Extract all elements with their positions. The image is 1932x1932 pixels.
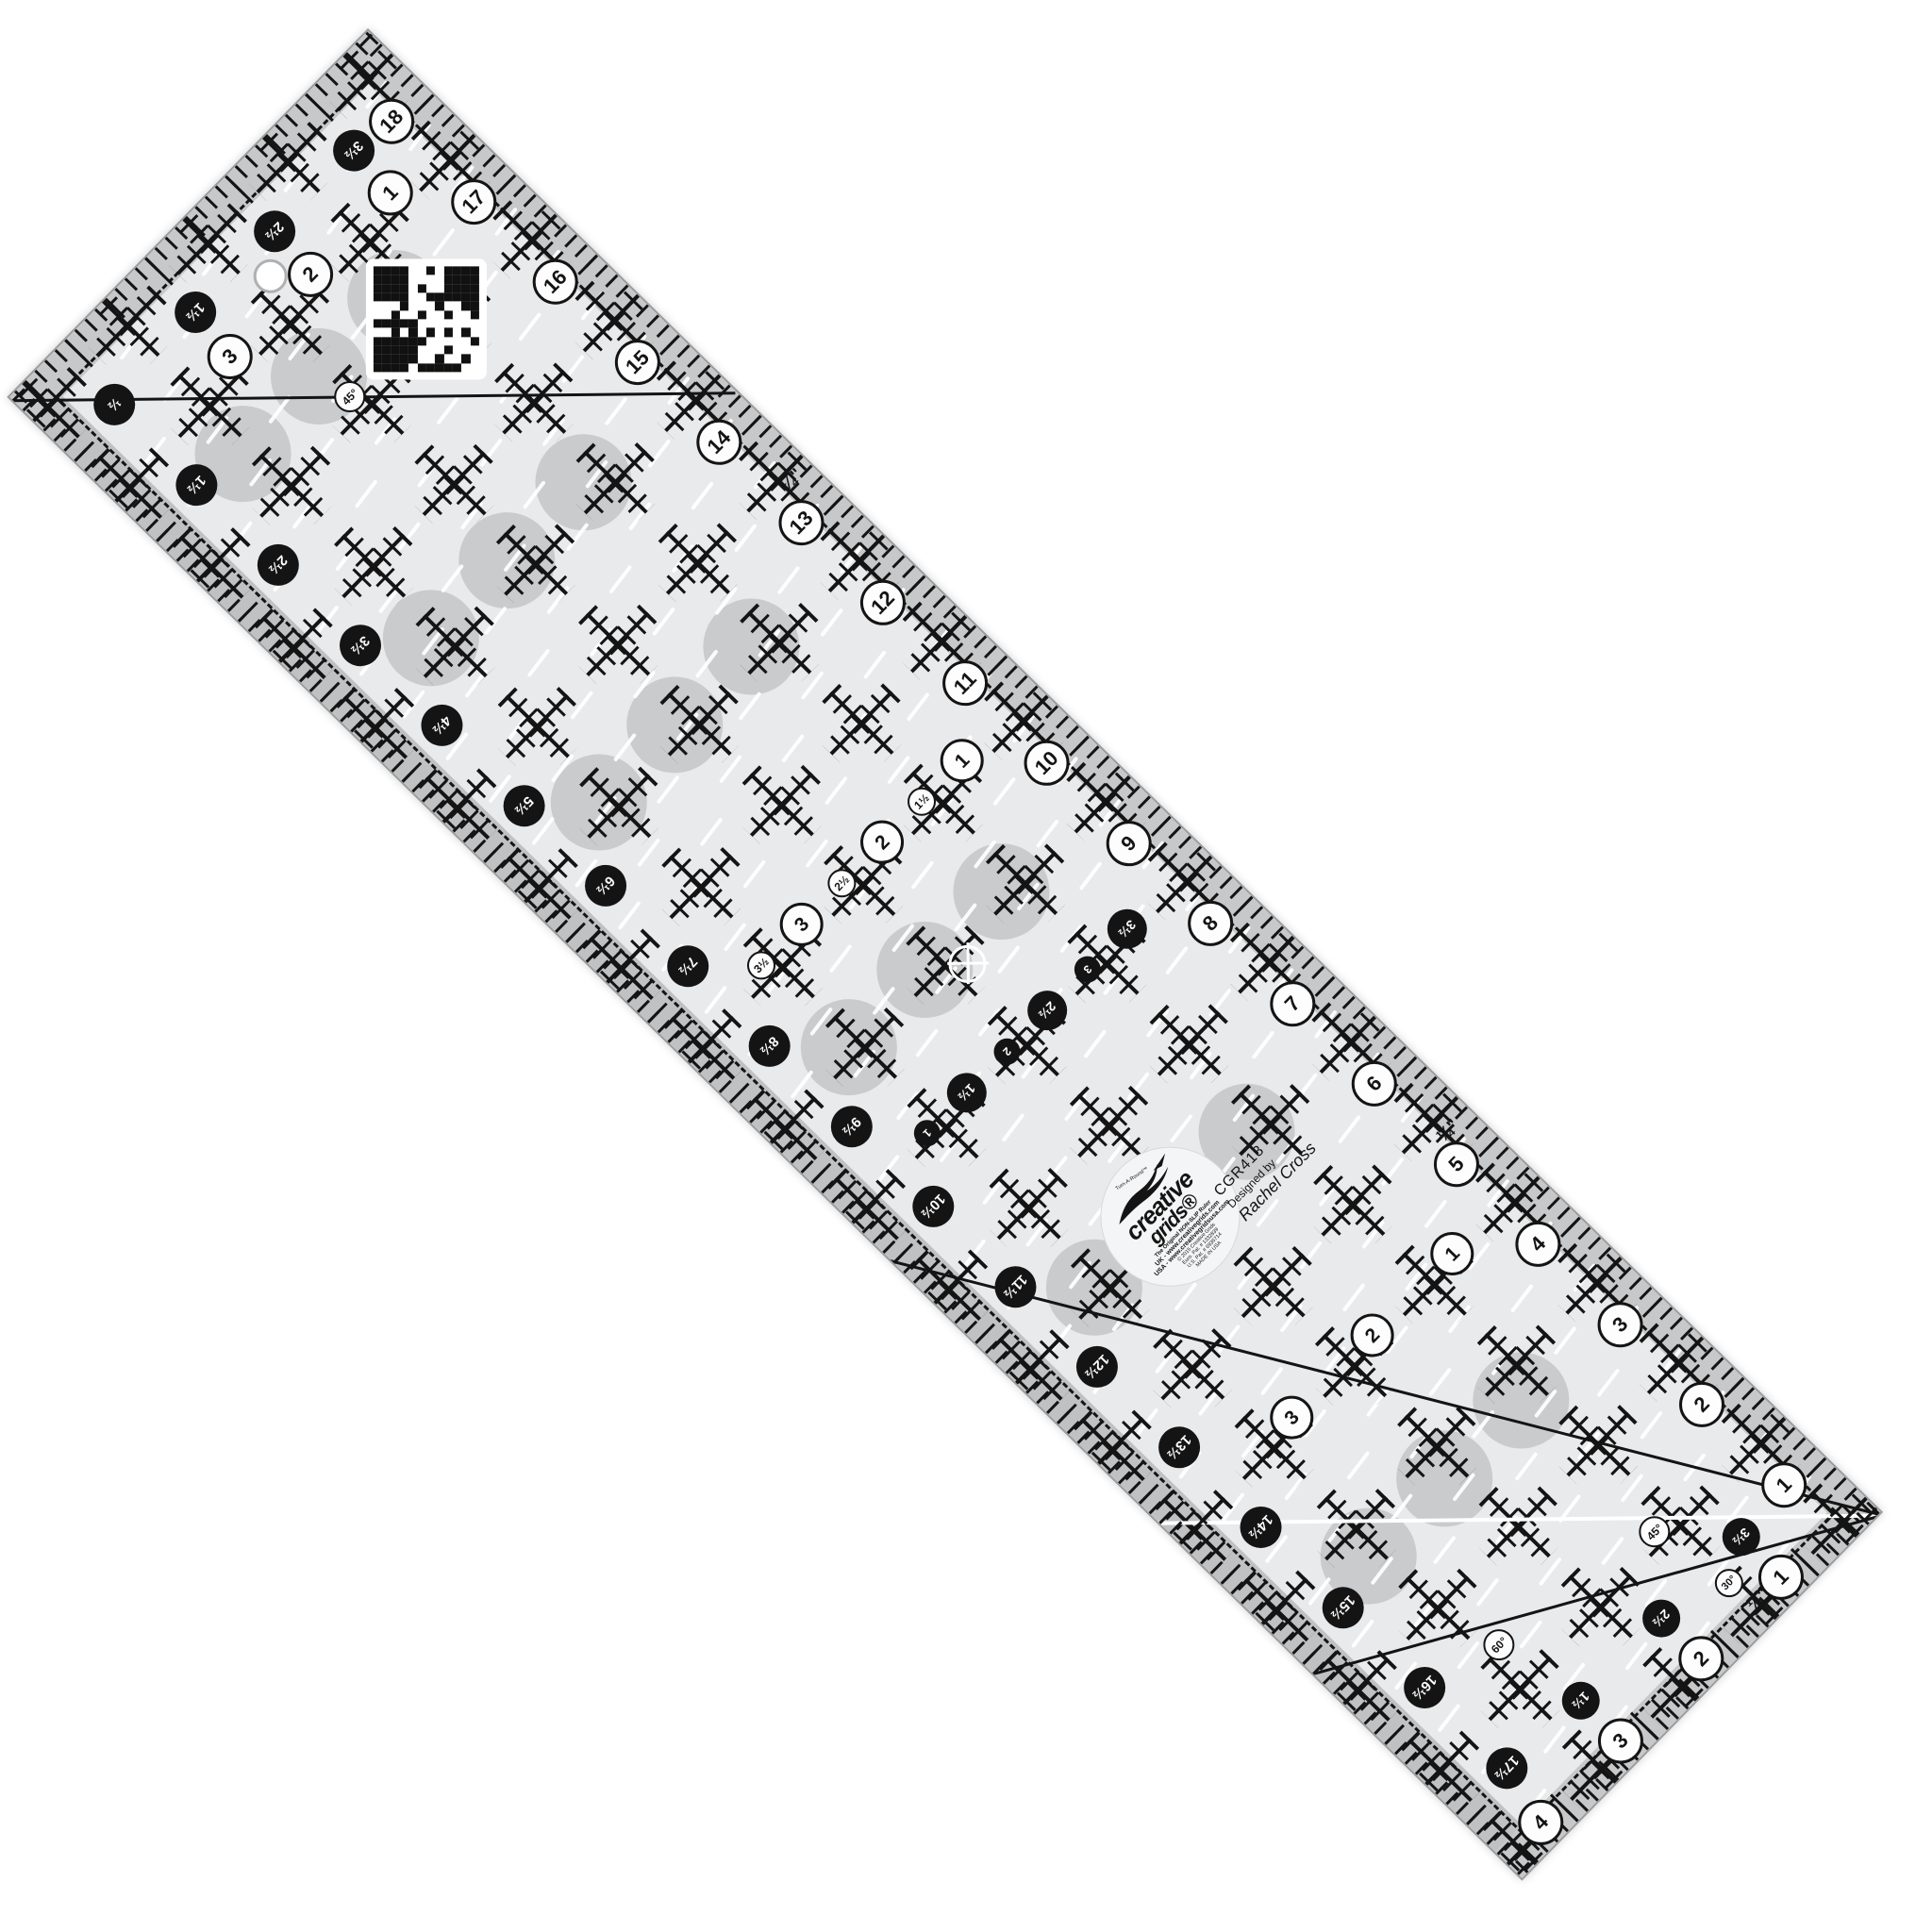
grip-streak: [734, 524, 758, 553]
grip-streak: [1601, 1537, 1624, 1566]
qr-module: [400, 266, 408, 275]
scale-number-bottom: 12½: [1068, 1338, 1126, 1396]
qr-module: [391, 363, 399, 372]
qr-module: [426, 292, 435, 301]
grip-streak: [915, 1028, 939, 1058]
qr-module: [382, 337, 391, 345]
qr-module: [374, 354, 382, 362]
qr-module: [374, 266, 382, 275]
qr-module: [443, 345, 452, 354]
qr-module: [400, 275, 408, 283]
qr-module: [400, 301, 408, 309]
qr-module: [470, 292, 478, 301]
grip-streak: [863, 650, 887, 679]
quilting-ruler: 181716151413121110987654321½1½2½3½4½5½6½…: [7, 28, 1883, 1881]
qr-module: [382, 354, 391, 362]
hanging-hole: [247, 252, 295, 300]
scale-number-right-black: 1½: [1555, 1674, 1608, 1727]
qr-module: [426, 266, 435, 275]
qr-module: [400, 284, 408, 292]
scale-number-left-white: 2: [278, 242, 342, 307]
grip-streak: [1251, 1030, 1274, 1059]
qr-module: [461, 327, 470, 336]
qr-module: [391, 284, 399, 292]
grip-streak: [1437, 1704, 1460, 1733]
qr-module: [417, 363, 425, 372]
qr-module: [374, 284, 382, 292]
qr-module: [461, 284, 470, 292]
qr-module: [400, 363, 408, 372]
qr-module: [435, 354, 443, 362]
scale-number-bottom: 17½: [1477, 1739, 1536, 1797]
qr-module: [382, 292, 391, 301]
grip-streak: [1433, 1536, 1457, 1565]
qr-module: [443, 292, 452, 301]
grip-streak: [1346, 1451, 1370, 1480]
grip-streak: [699, 817, 723, 846]
qr-module: [470, 301, 478, 309]
scale-number-bottom: 7½: [658, 937, 717, 995]
grip-streak: [1554, 1326, 1577, 1356]
qr-module: [374, 345, 382, 354]
qr-module: [391, 310, 399, 319]
scale-number-bottom: 2½: [248, 536, 307, 594]
grip-streak: [1640, 1410, 1663, 1440]
grip-streak: [618, 901, 641, 930]
qr-module: [382, 319, 391, 327]
scale-number-right-black: 2½: [1635, 1591, 1689, 1645]
qr-module: [382, 345, 391, 354]
grip-streak: [1260, 1366, 1284, 1395]
qr-module: [374, 337, 382, 345]
qr-module: [400, 319, 408, 327]
qr-module: [391, 266, 399, 275]
grip-streak: [1542, 1725, 1566, 1755]
qr-module: [408, 354, 417, 362]
qr-module: [391, 327, 399, 336]
grip-streak: [1001, 1113, 1024, 1142]
grip-streak: [738, 691, 761, 721]
qr-module: [408, 327, 417, 336]
scale-number-bottom: 4½: [412, 696, 471, 755]
scale-number-bottom: 14½: [1231, 1498, 1290, 1557]
scale-number-left-white: 3: [198, 325, 262, 389]
grip-streak: [1165, 946, 1189, 975]
qr-module: [470, 284, 478, 292]
qr-module: [382, 275, 391, 283]
grip-streak: [742, 859, 766, 889]
scale-number-bottom: ½: [85, 375, 143, 434]
scale-number-left-white: 1: [358, 160, 423, 225]
scale-number-left-black: 2½: [245, 202, 304, 260]
qr-module: [391, 292, 399, 301]
qr-module: [400, 292, 408, 301]
grip-streak: [1428, 1367, 1452, 1396]
qr-module: [391, 337, 399, 345]
grip-streak: [910, 860, 934, 890]
scale-number-bottom: 8½: [740, 1017, 798, 1075]
qr-module: [443, 363, 452, 372]
qr-module: [453, 266, 461, 275]
grip-streak: [432, 227, 456, 257]
qr-module: [374, 363, 382, 372]
scale-number-bottom: 6½: [576, 857, 635, 915]
qr-module: [374, 275, 382, 283]
qr-module: [470, 275, 478, 283]
qr-module: [382, 284, 391, 292]
product-photo: 181716151413121110987654321½1½2½3½4½5½6½…: [0, 0, 1932, 1932]
grip-streak: [1083, 1029, 1107, 1058]
qr-module: [391, 345, 399, 354]
scale-number-bottom: 3½: [330, 616, 389, 675]
grip-streak: [997, 945, 1021, 974]
qr-module: [400, 337, 408, 345]
grip-streak: [1342, 1283, 1366, 1312]
qr-module: [374, 292, 382, 301]
qr-module: [461, 275, 470, 283]
qr-module: [461, 266, 470, 275]
grip-streak: [781, 734, 805, 763]
qr-module: [453, 275, 461, 283]
grip-streak: [1514, 1452, 1538, 1481]
grip-streak: [1079, 861, 1103, 891]
qr-module: [435, 301, 443, 309]
qr-module: [453, 363, 461, 372]
qr-module: [443, 284, 452, 292]
qr-module: [453, 284, 461, 292]
grip-streak: [824, 776, 848, 806]
scale-number-bottom: 10½: [904, 1177, 962, 1236]
qr-module: [391, 354, 399, 362]
qr-module: [461, 292, 470, 301]
qr-module: [470, 266, 478, 275]
grip-streak: [724, 923, 747, 952]
scale-number-bottom: 9½: [822, 1097, 880, 1156]
qr-module: [382, 266, 391, 275]
qr-module: [443, 275, 452, 283]
qr-module: [374, 319, 382, 327]
grip-streak: [647, 439, 671, 468]
grip-streak: [992, 776, 1016, 806]
qr-module: [391, 275, 399, 283]
qr-module: [470, 337, 478, 345]
qr-module: [408, 337, 417, 345]
qr-module: [435, 292, 443, 301]
qr-module: [453, 292, 461, 301]
scale-number-bottom: 13½: [1149, 1418, 1207, 1476]
grip-streak: [691, 481, 714, 510]
qr-module: [400, 354, 408, 362]
qr-module: [391, 319, 399, 327]
qr-module: [435, 363, 443, 372]
qr-module: [417, 284, 425, 292]
grip-streak: [436, 395, 459, 425]
qr-module: [400, 345, 408, 354]
qr-module: [426, 327, 435, 336]
scale-number-bottom: 16½: [1395, 1658, 1454, 1717]
scale-number-bottom: 11½: [986, 1257, 1044, 1316]
grip-streak: [657, 775, 680, 805]
grip-streak: [1510, 1284, 1534, 1313]
qr-code-icon: [366, 258, 487, 379]
grip-streak: [526, 648, 550, 677]
qr-module: [426, 363, 435, 372]
grip-streak: [907, 692, 930, 722]
grip-streak: [355, 479, 378, 508]
qr-module: [443, 266, 452, 275]
qr-module: [408, 319, 417, 327]
qr-module: [417, 337, 425, 345]
grip-streak: [1596, 1368, 1620, 1397]
grip-streak: [1519, 1620, 1542, 1649]
grip-streak: [829, 944, 853, 974]
qr-module: [382, 363, 391, 372]
grip-streak: [518, 312, 541, 341]
qr-module: [470, 310, 478, 319]
angle-label-60: 60°: [1476, 1623, 1521, 1667]
qr-module: [461, 354, 470, 362]
qr-module: [408, 345, 417, 354]
qr-module: [417, 310, 425, 319]
grip-streak: [820, 608, 843, 637]
grip-streak: [605, 396, 628, 425]
qr-module: [443, 310, 452, 319]
grip-streak: [1475, 1577, 1499, 1607]
scale-number-left-black: 1½: [166, 283, 225, 341]
qr-module: [461, 301, 470, 309]
grip-streak: [608, 565, 632, 594]
grip-streak: [441, 564, 464, 593]
grip-streak: [1424, 1199, 1447, 1228]
qr-module: [443, 327, 452, 336]
grip-streak: [776, 566, 800, 595]
